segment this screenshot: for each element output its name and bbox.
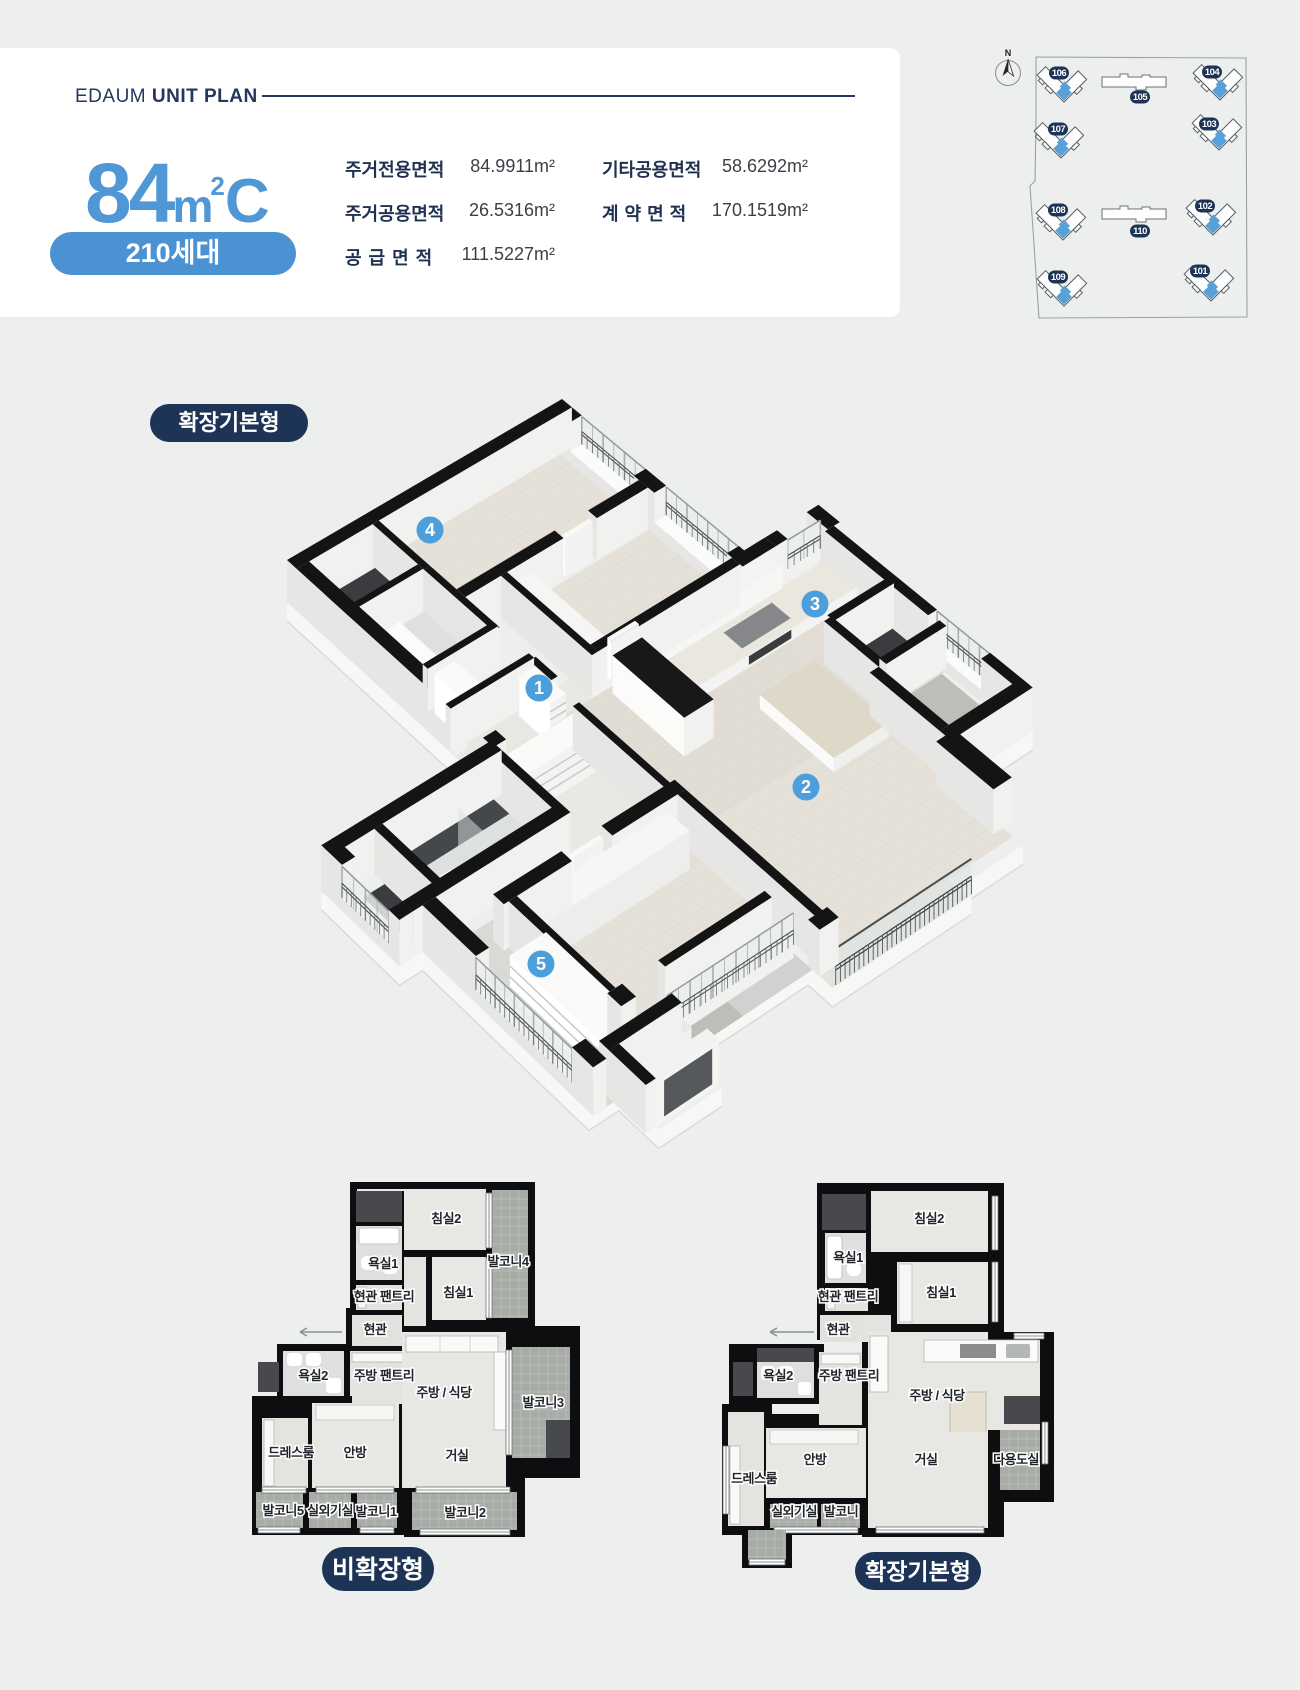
- svg-text:현관: 현관: [827, 1322, 850, 1337]
- svg-text:현관 팬트리: 현관 팬트리: [354, 1289, 414, 1304]
- svg-text:101: 101: [1193, 266, 1209, 277]
- svg-text:발코니3: 발코니3: [522, 1395, 563, 1410]
- svg-text:욕실2: 욕실2: [298, 1368, 328, 1383]
- svg-text:104: 104: [1205, 67, 1221, 78]
- svg-text:4: 4: [425, 520, 435, 540]
- svg-text:욕실1: 욕실1: [833, 1250, 863, 1265]
- svg-text:110: 110: [1133, 226, 1147, 237]
- svg-text:거실: 거실: [446, 1448, 469, 1463]
- svg-text:비확장형: 비확장형: [332, 1556, 424, 1584]
- svg-text:실외기실: 실외기실: [307, 1503, 353, 1518]
- svg-text:주방 / 식당: 주방 / 식당: [416, 1385, 472, 1400]
- svg-text:안방: 안방: [804, 1452, 827, 1467]
- svg-text:다용도실: 다용도실: [993, 1452, 1039, 1467]
- svg-text:현관: 현관: [364, 1322, 387, 1337]
- svg-text:드레스룸: 드레스룸: [731, 1471, 777, 1486]
- svg-text:5: 5: [536, 954, 546, 974]
- svg-text:드레스룸: 드레스룸: [268, 1445, 314, 1460]
- svg-text:침실1: 침실1: [443, 1285, 473, 1300]
- svg-text:욕실1: 욕실1: [368, 1256, 398, 1271]
- svg-text:주방 팬트리: 주방 팬트리: [354, 1368, 414, 1383]
- svg-text:발코니2: 발코니2: [444, 1505, 485, 1520]
- svg-text:1: 1: [534, 678, 544, 698]
- svg-text:현관 팬트리: 현관 팬트리: [818, 1289, 878, 1304]
- svg-text:발코니: 발코니: [824, 1504, 858, 1519]
- svg-text:발코니4: 발코니4: [487, 1254, 529, 1269]
- svg-text:발코니5: 발코니5: [262, 1503, 303, 1518]
- svg-text:침실1: 침실1: [926, 1285, 956, 1300]
- svg-text:106: 106: [1052, 68, 1067, 79]
- svg-text:실외기실: 실외기실: [771, 1504, 817, 1519]
- svg-text:침실2: 침실2: [914, 1211, 944, 1226]
- svg-text:발코니1: 발코니1: [355, 1504, 396, 1519]
- svg-text:102: 102: [1198, 201, 1213, 212]
- svg-text:103: 103: [1202, 119, 1217, 130]
- svg-text:안방: 안방: [344, 1445, 367, 1460]
- svg-text:거실: 거실: [915, 1452, 938, 1467]
- svg-text:109: 109: [1051, 272, 1066, 283]
- svg-text:2: 2: [801, 777, 811, 797]
- svg-text:108: 108: [1051, 205, 1066, 216]
- svg-text:주방 팬트리: 주방 팬트리: [819, 1368, 879, 1383]
- svg-text:N: N: [1005, 48, 1012, 58]
- svg-text:주방 / 식당: 주방 / 식당: [909, 1388, 965, 1403]
- svg-text:침실2: 침실2: [431, 1211, 461, 1226]
- svg-text:욕실2: 욕실2: [763, 1368, 793, 1383]
- svg-text:105: 105: [1133, 92, 1149, 103]
- svg-text:3: 3: [810, 594, 820, 614]
- svg-text:확장기본형: 확장기본형: [865, 1558, 971, 1584]
- svg-text:107: 107: [1051, 124, 1066, 135]
